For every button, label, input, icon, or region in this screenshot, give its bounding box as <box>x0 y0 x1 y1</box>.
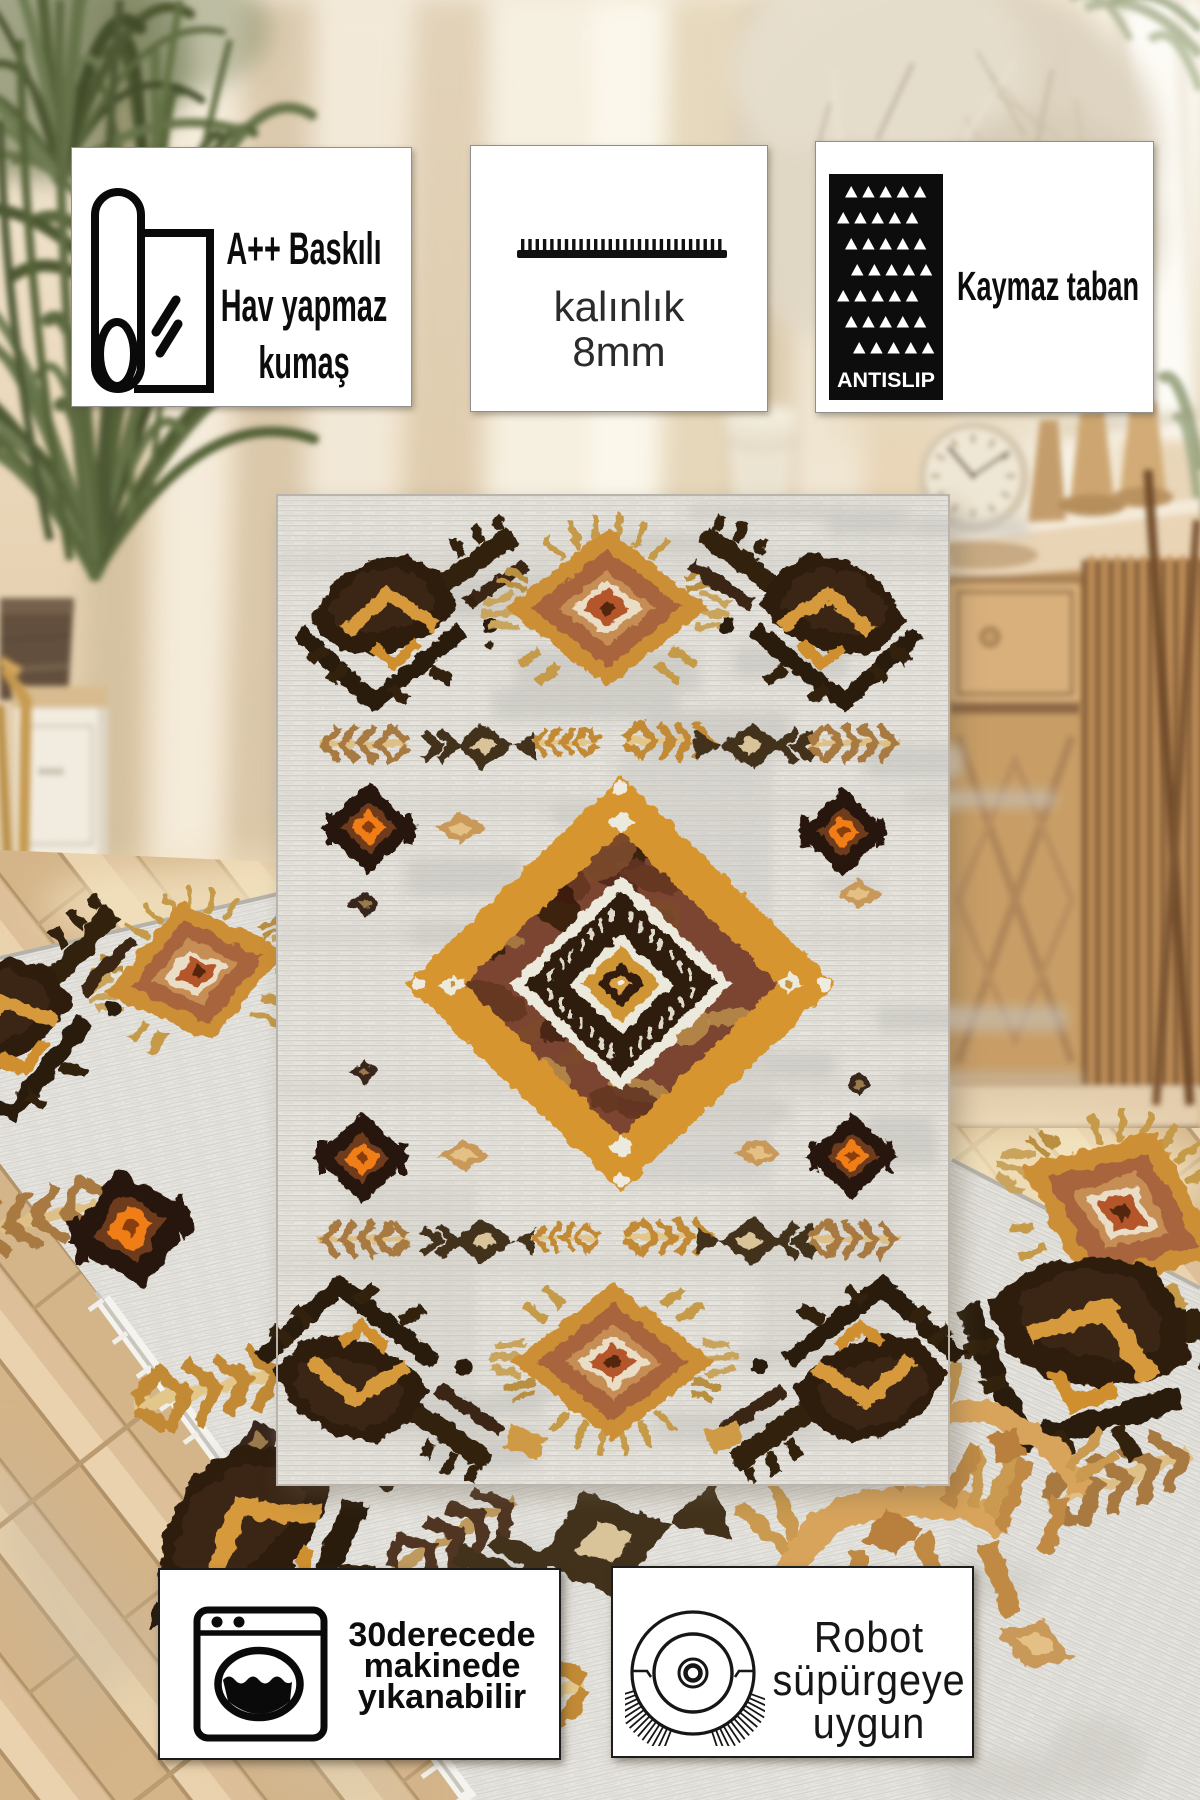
svg-text:ANTISLIP: ANTISLIP <box>837 368 935 392</box>
